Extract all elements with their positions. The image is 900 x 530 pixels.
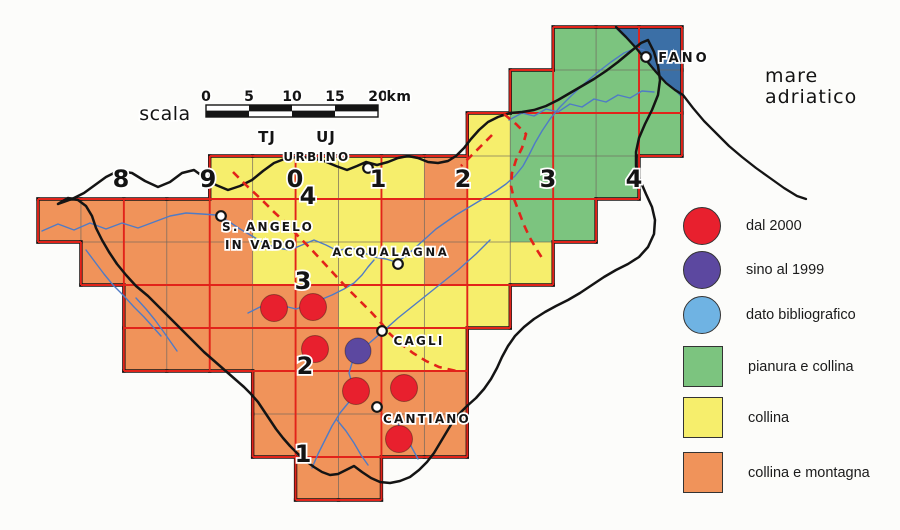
legend-item: sino al 1999	[683, 251, 824, 289]
zone-collina-cell	[510, 242, 553, 285]
zone-collina-cell	[339, 199, 382, 242]
record-dot-dal-2000	[386, 426, 413, 453]
scale-label: scala	[139, 103, 190, 125]
zone-collina-montagna-cell	[210, 328, 253, 371]
zone-pianura-collina-cell	[553, 27, 596, 70]
zone-collina-cell	[467, 199, 510, 242]
grid-row-number: 3	[295, 267, 312, 295]
city-dot-fano	[641, 52, 651, 62]
legend-label: collina	[748, 410, 789, 426]
zone-pianura-collina-cell	[553, 156, 596, 199]
scale-bar-segment	[249, 111, 292, 117]
zone-collina-montagna-cell	[210, 285, 253, 328]
zone-collina-cell	[467, 156, 510, 199]
record-dot-dal-2000	[343, 378, 370, 405]
scale-unit-label: km	[387, 89, 412, 105]
record-dot-dal-2000	[391, 375, 418, 402]
zone-collina-montagna-cell	[381, 199, 424, 242]
scale-bar-segment	[292, 105, 335, 111]
zone-collina-montagna-cell	[167, 328, 210, 371]
scale-bar-segment	[335, 111, 378, 117]
city-dot-cagli	[377, 326, 387, 336]
city-label-acqualagna: ACQUALAGNA	[332, 245, 449, 259]
scale-tick-label: 10	[282, 89, 302, 105]
city-label-cantiano: CANTIANO	[383, 412, 471, 426]
grid-row-number: 1	[295, 440, 312, 468]
zone-pianura-collina-cell	[639, 113, 682, 156]
grid-column-number: 2	[455, 165, 472, 193]
scale-tick-label: 0	[201, 89, 211, 105]
legend-item: collina e montagna	[683, 452, 870, 493]
grid-column-number: 1	[370, 165, 387, 193]
city-dot-cantiano	[372, 402, 382, 412]
scale-bar-segment	[249, 105, 292, 111]
scale-tick-label: 20	[368, 89, 388, 105]
zone-collina-montagna-cell	[339, 414, 382, 457]
scale-tick-label: 5	[244, 89, 254, 105]
scale-bar-segment	[206, 111, 249, 117]
scale-bar-segment	[335, 105, 378, 111]
legend-item: pianura e collina	[683, 346, 854, 387]
legend-item: dal 2000	[683, 207, 802, 245]
distribution-map-figure: FANOURBINOS. ANGELOIN VADOACQUALAGNACAGL…	[0, 0, 900, 530]
legend-swatch-square	[683, 397, 723, 438]
zone-collina-montagna-cell	[424, 371, 467, 414]
record-dot-dal-2000	[261, 295, 288, 322]
city-label-urbino: URBINO	[283, 150, 350, 164]
zone-collina-montagna-cell	[253, 371, 296, 414]
zone-collina-montagna-cell	[124, 285, 167, 328]
utm-band-label: UJ	[316, 128, 336, 146]
legend-swatch-circle	[683, 207, 721, 245]
zone-collina-cell	[467, 285, 510, 328]
city-label-s-angelo: S. ANGELO	[222, 220, 314, 234]
grid-column-number: 3	[540, 165, 557, 193]
zone-pianura-collina-cell	[596, 70, 639, 113]
zone-collina-cell	[381, 285, 424, 328]
scale-bar-segment	[206, 105, 249, 111]
legend-swatch-circle	[683, 296, 721, 334]
grid-column-number: 9	[200, 165, 217, 193]
zone-collina-montagna-cell	[124, 199, 167, 242]
legend-label: pianura e collina	[748, 359, 854, 375]
grid-row-number: 4	[300, 182, 317, 210]
zone-collina-montagna-cell	[167, 199, 210, 242]
zone-pianura-collina-cell	[553, 113, 596, 156]
legend-label: dato bibliografico	[746, 307, 856, 323]
zone-collina-montagna-cell	[424, 199, 467, 242]
zone-collina-montagna-cell	[253, 414, 296, 457]
grid-row-number: 2	[297, 352, 314, 380]
legend-swatch-circle	[683, 251, 721, 289]
legend-label: dal 2000	[746, 218, 802, 234]
zone-pianura-collina-cell	[596, 113, 639, 156]
legend-item: dato bibliografico	[683, 296, 856, 334]
scale-tick-label: 15	[325, 89, 344, 105]
legend-label: collina e montagna	[748, 465, 870, 481]
scale-bar-segment	[292, 111, 335, 117]
grid-column-number: 8	[113, 165, 130, 193]
zone-collina-montagna-cell	[38, 199, 81, 242]
sea-label-line2: adriatico	[765, 87, 857, 108]
sea-label-line1: mare	[765, 66, 857, 87]
zone-collina-montagna-cell	[167, 242, 210, 285]
utm-band-label: TJ	[258, 128, 276, 146]
zone-collina-montagna-cell	[81, 199, 124, 242]
zone-collina-cell	[467, 242, 510, 285]
city-label-in-vado: IN VADO	[225, 238, 297, 252]
zone-collina-montagna-cell	[253, 328, 296, 371]
zone-collina-cell	[339, 285, 382, 328]
legend-item: collina	[683, 397, 789, 438]
record-dot-dal-2000	[300, 294, 327, 321]
legend-swatch-square	[683, 346, 723, 387]
legend-swatch-square	[683, 452, 723, 493]
city-label-cagli: CAGLI	[393, 334, 444, 348]
zone-pianura-collina-cell	[553, 199, 596, 242]
sea-label: mare adriatico	[765, 66, 857, 108]
grid-column-number: 4	[626, 165, 643, 193]
legend-label: sino al 1999	[746, 262, 824, 278]
record-dot-sino-1999	[345, 338, 371, 364]
city-dot-acqualagna	[393, 259, 403, 269]
